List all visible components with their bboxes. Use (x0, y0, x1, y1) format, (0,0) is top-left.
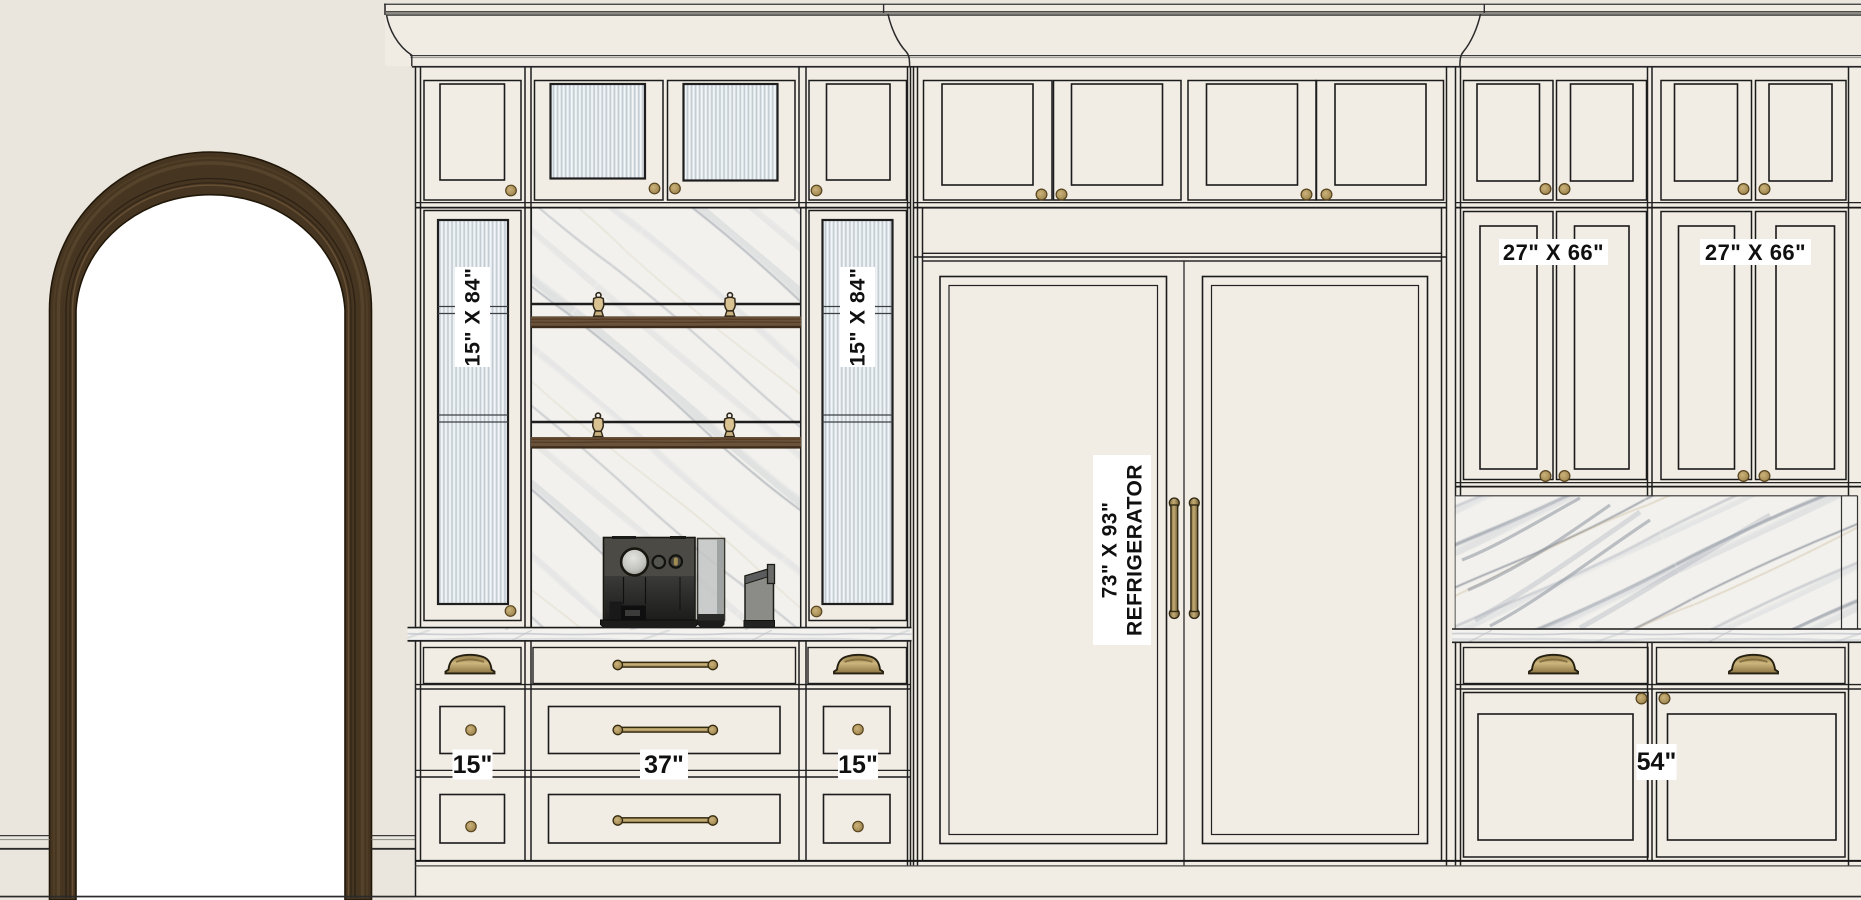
svg-text:15": 15" (838, 751, 878, 779)
svg-text:73" X 93": 73" X 93" (1099, 502, 1122, 599)
svg-text:REFRIGERATOR: REFRIGERATOR (1124, 464, 1147, 636)
svg-text:15": 15" (453, 751, 493, 779)
svg-text:54": 54" (1637, 748, 1677, 776)
svg-text:15" X 84": 15" X 84" (461, 267, 485, 366)
svg-text:15" X 84": 15" X 84" (846, 267, 870, 366)
svg-text:37": 37" (644, 751, 684, 779)
svg-text:27" X 66": 27" X 66" (1503, 240, 1604, 265)
svg-text:27" X 66": 27" X 66" (1705, 240, 1806, 265)
